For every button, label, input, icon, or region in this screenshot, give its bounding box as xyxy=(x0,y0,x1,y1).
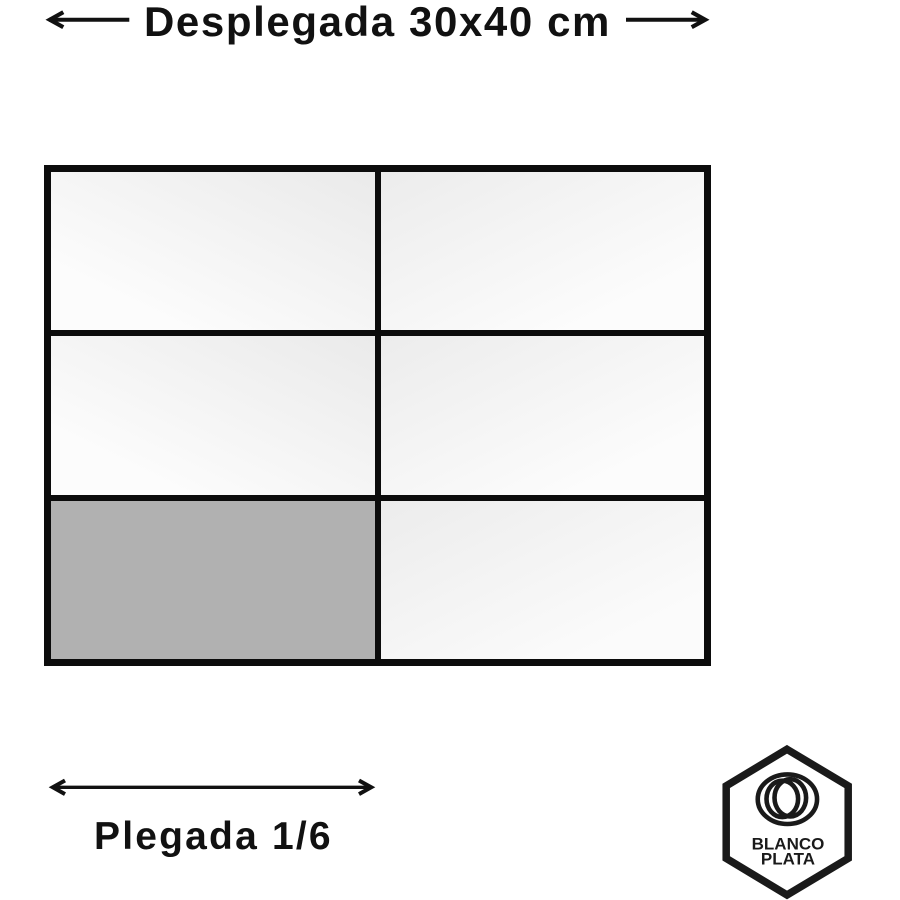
svg-text:PLATA: PLATA xyxy=(761,850,815,869)
